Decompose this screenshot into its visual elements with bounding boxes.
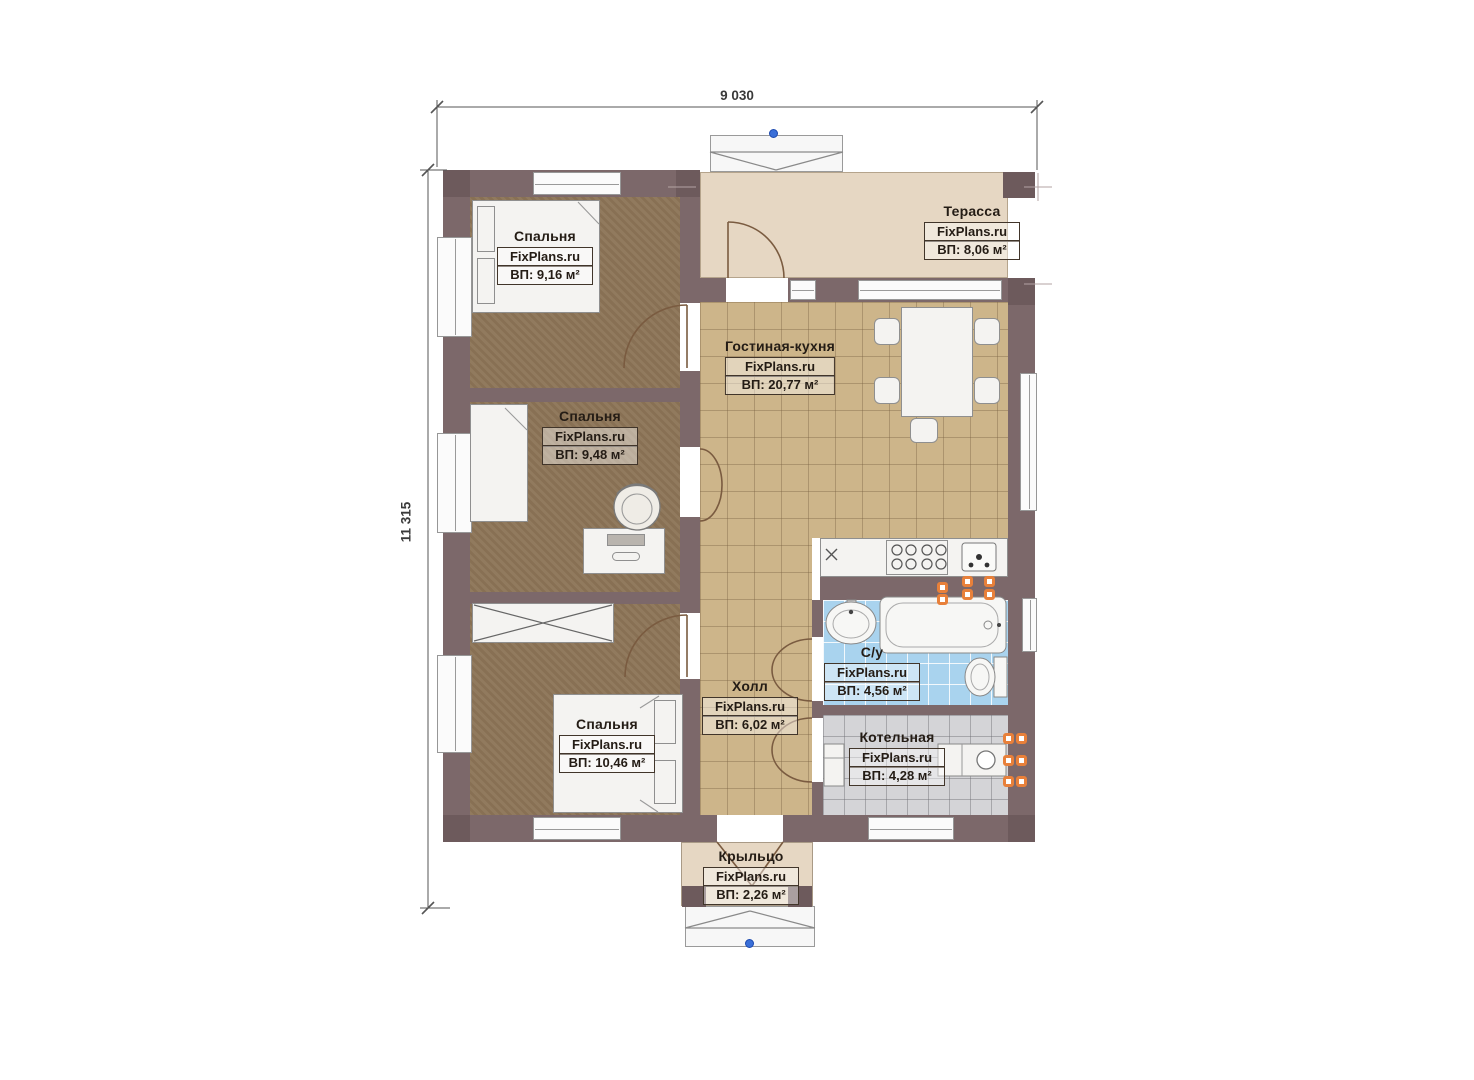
stove	[886, 540, 948, 575]
dimension-width: 9 030	[720, 88, 754, 103]
room-area: ВП: 10,46 м²	[559, 753, 655, 773]
pipe-riser	[962, 576, 973, 587]
wall-kitchen-bathroom	[820, 577, 1008, 600]
pipe-riser	[1016, 733, 1027, 744]
room-label-living-kitchen: Гостиная-кухня FixPlans.ru ВП: 20,77 м²	[725, 338, 835, 395]
pipe-riser	[1003, 755, 1014, 766]
room-name: Спальня	[542, 408, 638, 424]
corner-post	[676, 170, 700, 197]
floor-plan: 9 030 11 315 Спальня FixPlans.ru ВП: 9,1…	[0, 0, 1474, 1080]
room-watermark: FixPlans.ru	[497, 247, 593, 267]
room-area: ВП: 4,56 м²	[824, 681, 920, 701]
room-area: ВП: 9,16 м²	[497, 265, 593, 285]
room-name: С/у	[824, 644, 920, 660]
room-area: ВП: 8,06 м²	[924, 240, 1020, 260]
window-bottom-boiler	[868, 817, 954, 840]
door-opening-bedroom-1	[680, 303, 700, 371]
corner-post	[443, 170, 470, 197]
pipe-riser	[984, 576, 995, 587]
room-area: ВП: 6,02 м²	[702, 715, 798, 735]
dining-chair	[874, 377, 900, 404]
window-left-bedroom-1	[437, 237, 472, 337]
bed-single-bedroom-2	[470, 404, 528, 522]
corner-post	[1008, 815, 1035, 842]
door-opening-terrace	[726, 278, 788, 302]
desk-monitor	[607, 534, 645, 546]
window-top-bedroom-1	[533, 172, 621, 195]
room-area: ВП: 20,77 м²	[725, 375, 835, 395]
dining-chair	[874, 318, 900, 345]
window-terrace-wall-2	[858, 280, 1002, 300]
dining-chair	[974, 377, 1000, 404]
room-area: ВП: 4,28 м²	[849, 766, 945, 786]
pipe-riser	[1016, 755, 1027, 766]
wall-hall-right	[812, 600, 823, 815]
dining-table	[901, 307, 973, 417]
wardrobe-bedroom-3	[472, 603, 614, 643]
room-label-boiler-room: Котельная FixPlans.ru ВП: 4,28 м²	[849, 729, 945, 786]
survey-marker-top	[769, 129, 778, 138]
room-area: ВП: 9,48 м²	[542, 445, 638, 465]
window-right-kitchen	[1020, 373, 1037, 511]
room-watermark: FixPlans.ru	[703, 867, 799, 887]
pipe-riser	[937, 594, 948, 605]
floor-hall	[700, 538, 812, 815]
dining-chair	[974, 318, 1000, 345]
room-label-bedroom-2: Спальня FixPlans.ru ВП: 9,48 м²	[542, 408, 638, 465]
room-watermark: FixPlans.ru	[824, 663, 920, 683]
room-label-bedroom-1: Спальня FixPlans.ru ВП: 9,16 м²	[497, 228, 593, 285]
room-watermark: FixPlans.ru	[849, 748, 945, 768]
room-name: Крыльцо	[703, 848, 799, 864]
window-left-bedroom-2	[437, 433, 472, 533]
room-label-porch: Крыльцо FixPlans.ru ВП: 2,26 м²	[703, 848, 799, 905]
dining-chair	[910, 418, 938, 443]
pipe-riser	[1016, 776, 1027, 787]
pipe-riser	[962, 589, 973, 600]
window-left-bedroom-3	[437, 655, 472, 753]
pillow	[477, 258, 495, 304]
pipe-riser	[1003, 733, 1014, 744]
room-label-bathroom: С/у FixPlans.ru ВП: 4,56 м²	[824, 644, 920, 701]
wall-bathroom-boiler	[823, 705, 1008, 715]
room-name: Спальня	[497, 228, 593, 244]
corner-post-terrace	[1003, 172, 1035, 198]
pillow	[477, 206, 495, 252]
room-watermark: FixPlans.ru	[542, 427, 638, 447]
room-name: Холл	[702, 678, 798, 694]
room-name: Терасса	[924, 203, 1020, 219]
door-opening-bedroom-2	[680, 447, 700, 517]
dimension-height: 11 315	[399, 502, 414, 543]
door-opening-bedroom-3	[680, 613, 700, 679]
room-label-terrace: Терасса FixPlans.ru ВП: 8,06 м²	[924, 203, 1020, 260]
room-name: Спальня	[559, 716, 655, 732]
terrace-steps	[710, 135, 843, 172]
room-area: ВП: 2,26 м²	[703, 885, 799, 905]
window-right-bathroom	[1022, 598, 1037, 652]
corner-post	[1008, 278, 1035, 305]
room-label-hall: Холл FixPlans.ru ВП: 6,02 м²	[702, 678, 798, 735]
pipe-riser	[984, 589, 995, 600]
pillow	[654, 760, 676, 804]
room-watermark: FixPlans.ru	[725, 357, 835, 377]
room-watermark: FixPlans.ru	[559, 735, 655, 755]
door-opening-boiler	[812, 718, 823, 782]
room-watermark: FixPlans.ru	[924, 222, 1020, 242]
door-opening-porch	[717, 815, 783, 842]
room-watermark: FixPlans.ru	[702, 697, 798, 717]
wall-bedroom1-bedroom2	[470, 388, 680, 402]
survey-marker-bottom	[745, 939, 754, 948]
pipe-riser	[1003, 776, 1014, 787]
window-terrace-wall-1	[790, 280, 816, 300]
pipe-riser	[937, 582, 948, 593]
desk-keyboard	[612, 552, 640, 561]
door-opening-bathroom	[812, 637, 823, 701]
room-label-bedroom-3: Спальня FixPlans.ru ВП: 10,46 м²	[559, 716, 655, 773]
room-name: Котельная	[849, 729, 945, 745]
room-name: Гостиная-кухня	[725, 338, 835, 354]
window-bottom-bedroom-3	[533, 817, 621, 840]
corner-post	[443, 815, 470, 842]
pillow	[654, 700, 676, 744]
